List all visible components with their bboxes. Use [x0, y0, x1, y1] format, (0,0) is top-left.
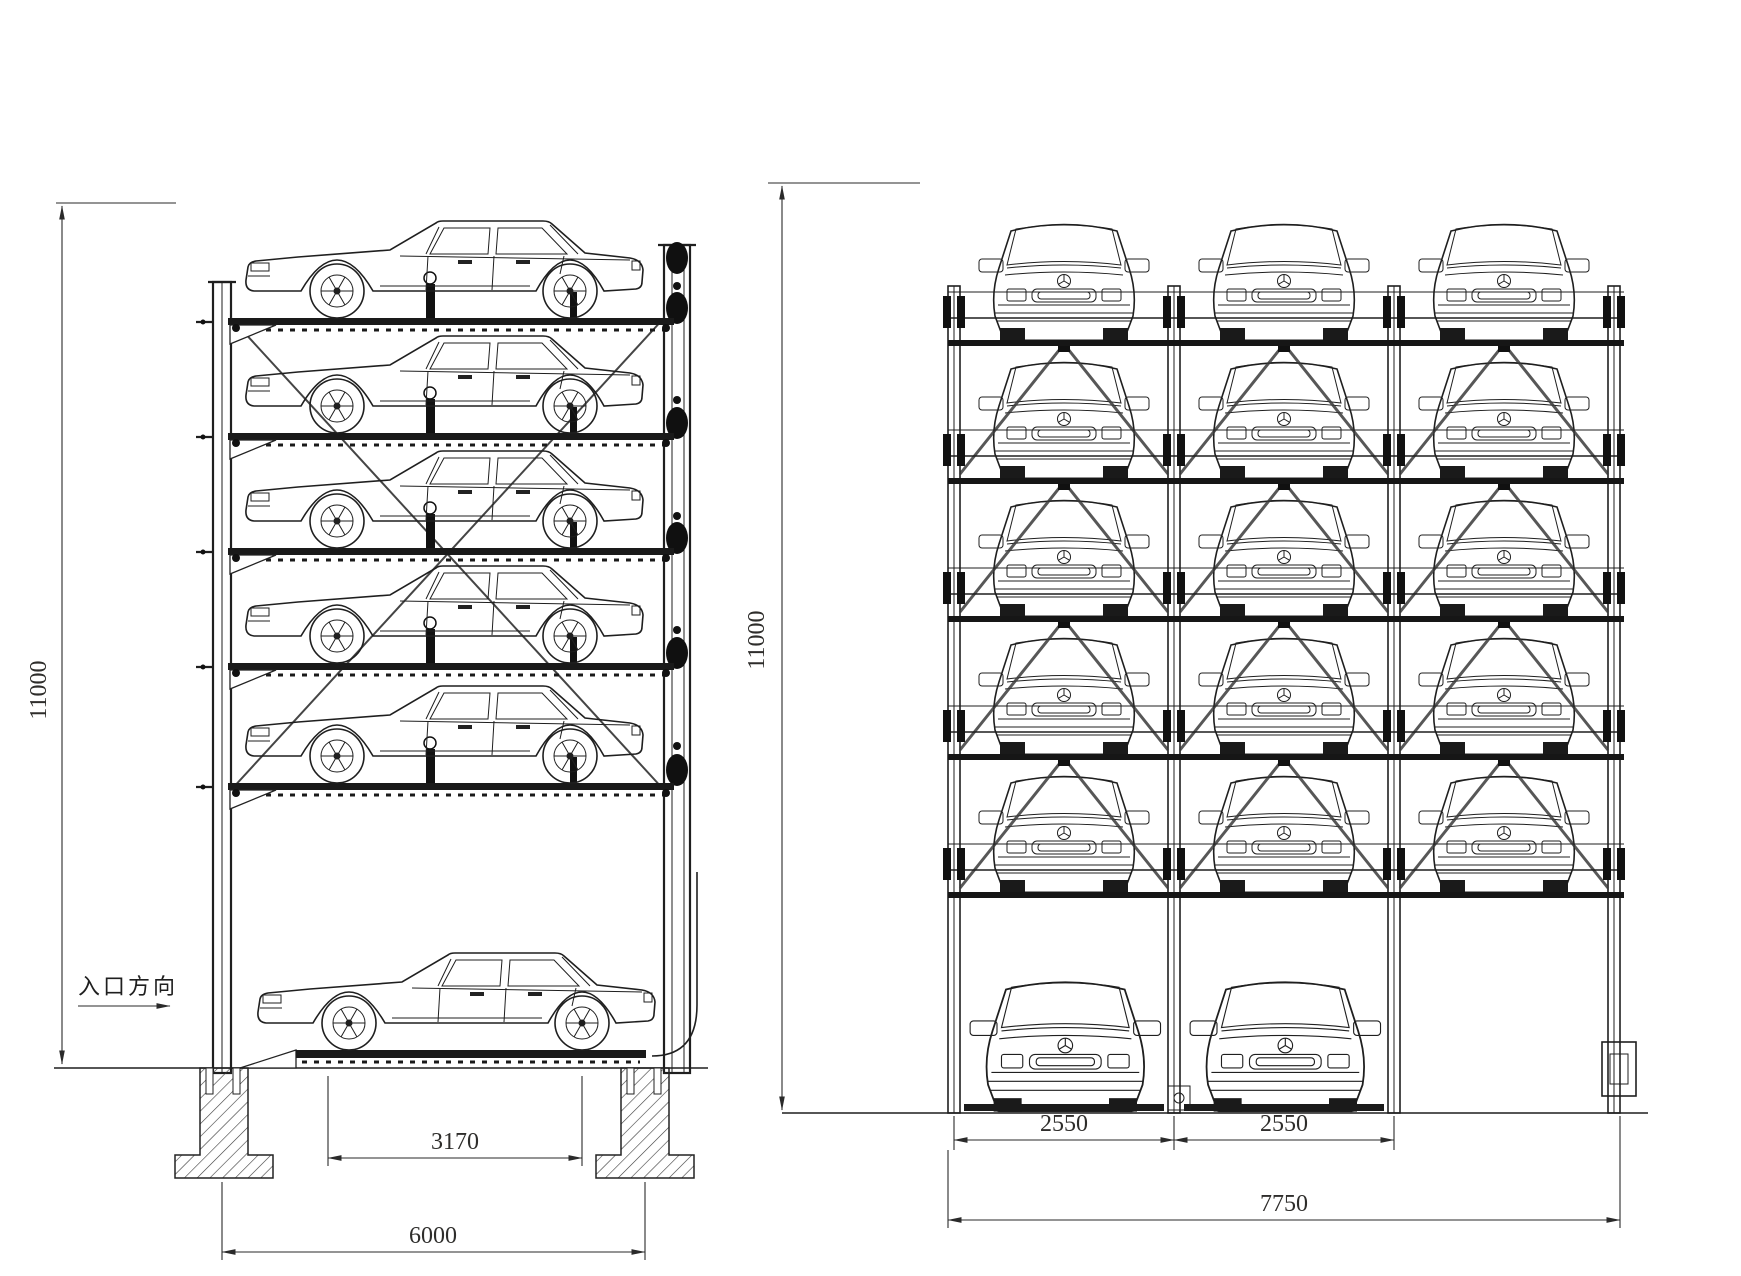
car-side-view	[246, 221, 643, 318]
side-elevation: 11000	[26, 203, 708, 1260]
platform-row	[943, 568, 1625, 622]
car-front-view	[1419, 225, 1589, 341]
foundation-left	[175, 1068, 273, 1178]
entrance-direction: 入口方向	[78, 974, 178, 1006]
dim-front-bays: 2550 2550	[954, 1111, 1394, 1150]
car-side-view	[246, 451, 643, 548]
dim-side-height-label: 11000	[26, 660, 52, 719]
ground-platform	[240, 1050, 646, 1068]
dim-side-overall-width-label: 6000	[409, 1223, 457, 1249]
car-side-view	[258, 953, 655, 1050]
dim-front-overall-width-label: 7750	[1260, 1191, 1308, 1217]
platform-level	[228, 617, 674, 689]
front-elevation: 11000	[744, 183, 1648, 1228]
car-front-view	[1190, 982, 1380, 1111]
car-front-view	[1199, 225, 1369, 341]
platform-level	[228, 272, 674, 344]
dim-front-bay2-label: 2550	[1260, 1111, 1308, 1137]
lift-machinery-column	[652, 242, 697, 1073]
car-side-view	[246, 686, 643, 783]
entrance-direction-label: 入口方向	[78, 974, 178, 999]
parking-system-elevation-drawing: 11000	[0, 0, 1741, 1276]
dim-side-height: 11000	[26, 203, 176, 1064]
dim-side-overall-width: 6000	[222, 1182, 645, 1260]
platform-level	[228, 387, 674, 459]
car-side-view	[246, 336, 643, 433]
platform-level	[228, 502, 674, 574]
platform-row	[943, 292, 1625, 346]
platform-level	[228, 737, 674, 809]
platform-row	[943, 706, 1625, 760]
car-front-view	[979, 225, 1149, 341]
foundation-right	[596, 1068, 694, 1178]
platform-row	[943, 430, 1625, 484]
dim-front-height: 11000	[744, 183, 920, 1110]
dim-side-platform-width-label: 3170	[431, 1129, 479, 1155]
elevated-cars	[979, 225, 1589, 893]
dim-side-platform-width: 3170	[328, 1076, 582, 1166]
control-box	[1602, 1042, 1636, 1096]
car-side-view	[246, 566, 643, 663]
dim-front-height-label: 11000	[744, 610, 770, 669]
platform-row	[943, 844, 1625, 898]
car-front-view	[970, 982, 1160, 1111]
dim-front-bay1-label: 2550	[1040, 1111, 1088, 1137]
blueprint-canvas: 11000	[0, 0, 1741, 1276]
